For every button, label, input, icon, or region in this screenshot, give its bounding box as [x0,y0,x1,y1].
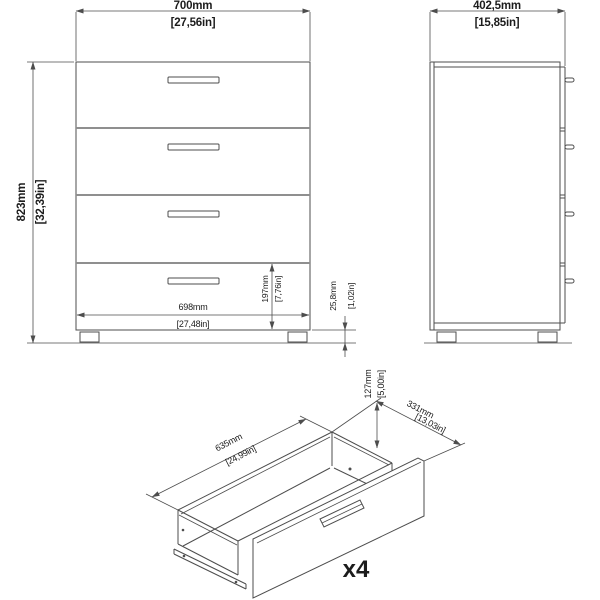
side-foot-right [538,332,557,342]
dim-drawer-front-height: 197mm [7,76in] [260,264,283,329]
drawer-handle [168,278,219,284]
dim-leg-height-in: [1,02in] [346,283,356,309]
dim-front-height-mm: 823mm [16,183,28,222]
dim-side-depth: 402,5mm [15,85in] [430,0,565,66]
side-handle-knob [565,279,574,283]
drawer-iso-view: 635mm [24,99in] 331mm [13,03in] 127mm [5… [146,369,465,598]
side-handle-knob [565,212,574,216]
side-cabinet-outline [430,62,560,330]
drawer-rim-front-left [178,510,238,541]
dim-drawer-front-mm: 197mm [260,275,270,302]
side-handle-knob [565,78,574,82]
front-view: 700mm [27,56in] 823mm [32,39in] 698mm [2… [16,0,356,357]
dim-front-width-in: [27,56in] [171,17,216,29]
drawer-slide-rail [174,549,246,589]
dim-drawer-height-mm: 127mm [363,369,373,398]
dim-drawer-front-in: [7,76in] [273,276,283,302]
front-foot-right [288,332,307,342]
side-view: 402,5mm [15,85in] [424,0,574,343]
drawer-quantity-label: x4 [343,556,370,583]
dim-side-depth-mm: 402,5mm [473,0,521,12]
dim-drawer-height: 127mm [5,00in] [363,369,386,448]
dim-front-height: 823mm [32,39in] [16,62,74,343]
dim-inner-width-in: [27,48in] [177,319,210,329]
dim-drawer-length: 635mm [24,99in] [146,416,332,510]
drawer-front-panel [253,458,424,598]
dim-drawer-height-in: [5,00in] [376,370,386,398]
dim-front-height-in: [32,39in] [35,179,47,224]
front-foot-left [80,332,99,342]
drawer-rim-back-right [332,432,392,463]
dim-leg-height: 25,8mm [1,02in] [312,281,356,357]
screw-hole [349,468,352,471]
drawer-rim-back-left [178,432,332,510]
dim-front-width-mm: 700mm [174,0,213,12]
drawer-handle [168,144,219,150]
dim-leg-height-mm: 25,8mm [328,281,338,311]
dim-inner-width: 698mm [27,48in] [77,302,309,329]
side-handle-knob [565,145,574,149]
drawer-handle [168,77,219,83]
chest-dimension-diagram: 700mm [27,56in] 823mm [32,39in] 698mm [2… [0,0,600,600]
technical-drawing-page: 700mm [27,56in] 823mm [32,39in] 698mm [2… [0,0,600,600]
side-foot-left [437,332,456,342]
dim-drawer-depth: 331mm [13,03in] [332,398,465,461]
dim-front-width: 700mm [27,56in] [76,0,310,61]
drawer-handle [168,211,219,217]
dim-inner-width-mm: 698mm [178,302,207,312]
dim-side-depth-in: [15,85in] [475,17,520,29]
screw-hole [182,529,185,532]
side-drawer-fronts [560,67,574,323]
